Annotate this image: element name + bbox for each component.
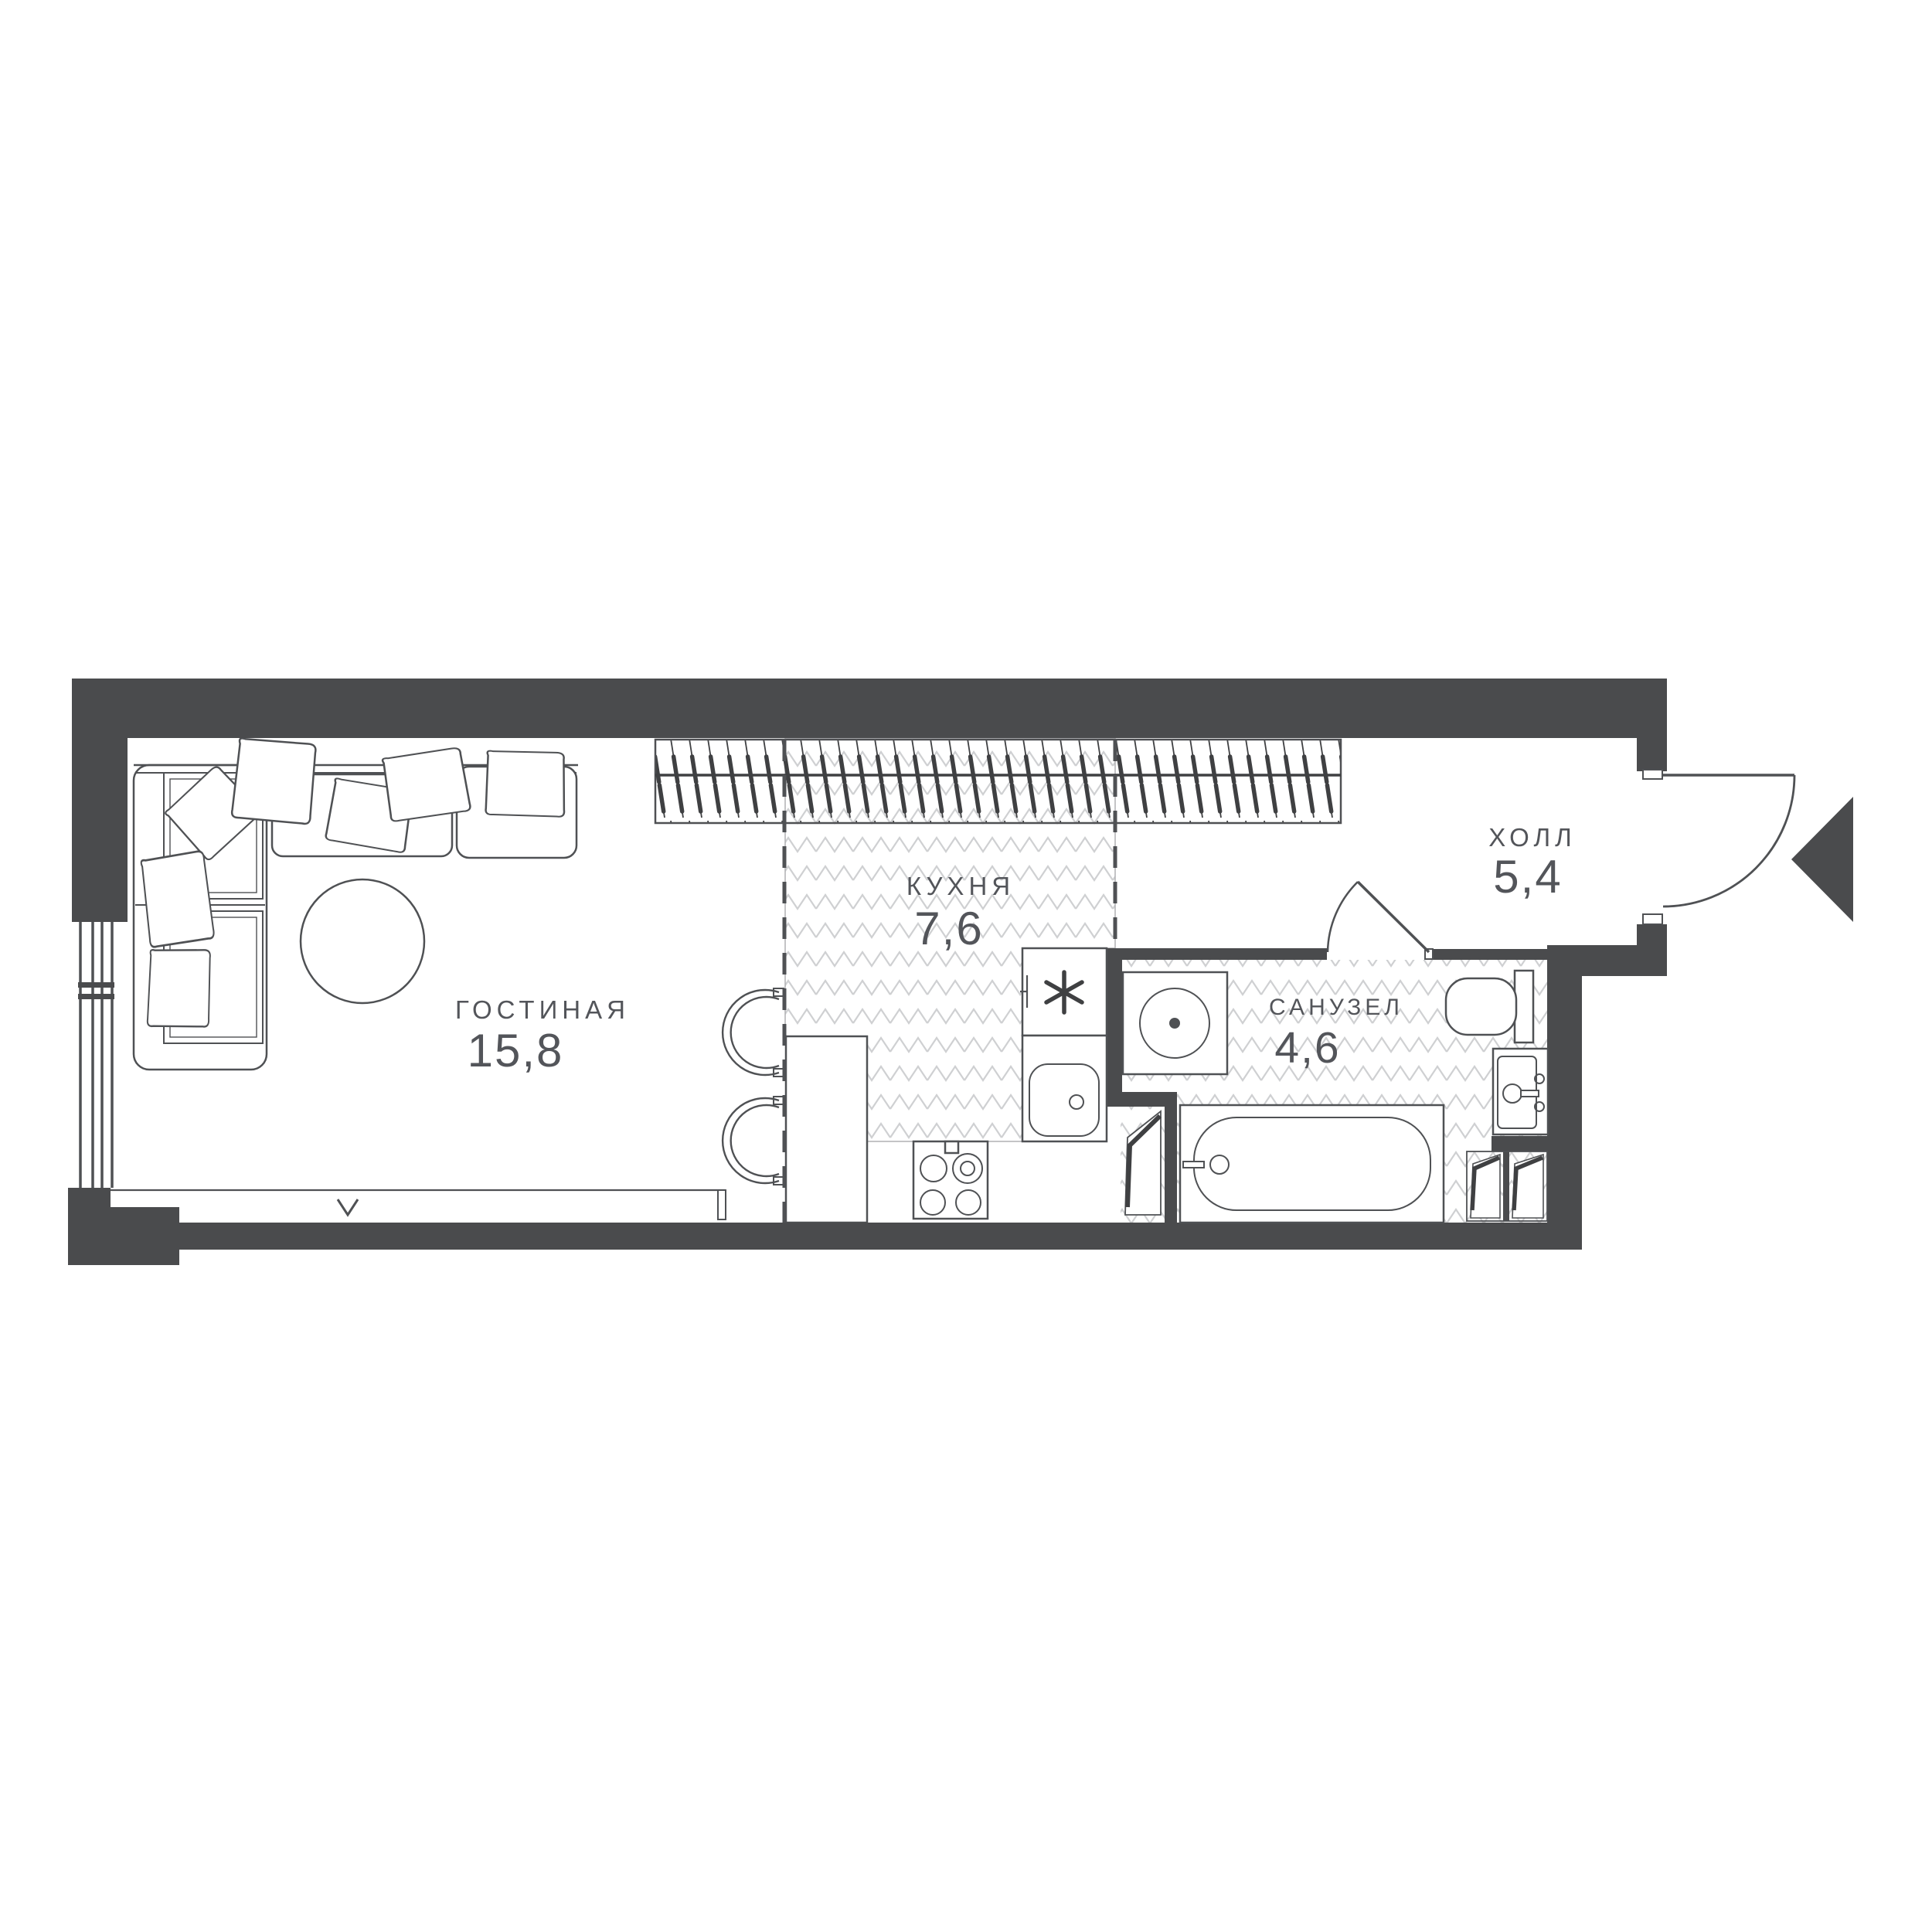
- room-label-living: ГОСТИНАЯ: [455, 995, 630, 1024]
- top-wall: [72, 679, 1667, 738]
- room-area-kitchen: 7,6: [914, 903, 983, 954]
- bathtub-icon: [1180, 1105, 1444, 1223]
- room-area-bathroom: 4,6: [1274, 1023, 1340, 1073]
- shaft-wall-stub: [1121, 1092, 1177, 1107]
- room-label-bathroom: САНУЗЕЛ: [1269, 995, 1403, 1020]
- bottom-left-corner: [68, 1188, 111, 1265]
- floor-plan-canvas: ГОСТИНАЯ 15,8 КУХНЯ 7,6 САНУЗЕЛ 4,6 ХОЛЛ…: [0, 0, 1932, 1932]
- bottom-left-step: [111, 1207, 179, 1265]
- floor-plan-page: ГОСТИНАЯ 15,8 КУХНЯ 7,6 САНУЗЕЛ 4,6 ХОЛЛ…: [0, 0, 1932, 1932]
- bathroom-wall-left: [1107, 948, 1327, 960]
- sink-niche-stub: [1492, 1136, 1549, 1151]
- cooktop-icon: [913, 1141, 988, 1219]
- bathroom-right-wall: [1547, 945, 1582, 1250]
- bottom-wall: [179, 1223, 1582, 1250]
- oven-icon: [1020, 948, 1107, 1036]
- bathroom-sink-icon: [1493, 1049, 1548, 1134]
- entry-door-jamb-top: [1637, 738, 1667, 771]
- bathroom-wall-right: [1429, 949, 1549, 960]
- washing-machine-icon: [1123, 972, 1227, 1074]
- room-label-hall: ХОЛЛ: [1488, 823, 1577, 852]
- kitchen-bathroom-wall: [1107, 948, 1122, 1107]
- toilet-icon: [1446, 971, 1533, 1043]
- room-area-living: 15,8: [468, 1025, 564, 1077]
- room-area-hall: 5,4: [1493, 851, 1562, 903]
- shaft-wall-column: [1165, 1107, 1177, 1250]
- kitchen-counter-icon: [786, 1036, 867, 1223]
- kitchen-sink-icon: [1022, 1036, 1107, 1141]
- room-label-kitchen: КУХНЯ: [906, 872, 1015, 900]
- wardrobe-rail-icon: [655, 740, 1341, 823]
- coffee-table-icon: [301, 879, 424, 1003]
- vent-divider: [1503, 1151, 1509, 1221]
- left-wall: [72, 679, 128, 922]
